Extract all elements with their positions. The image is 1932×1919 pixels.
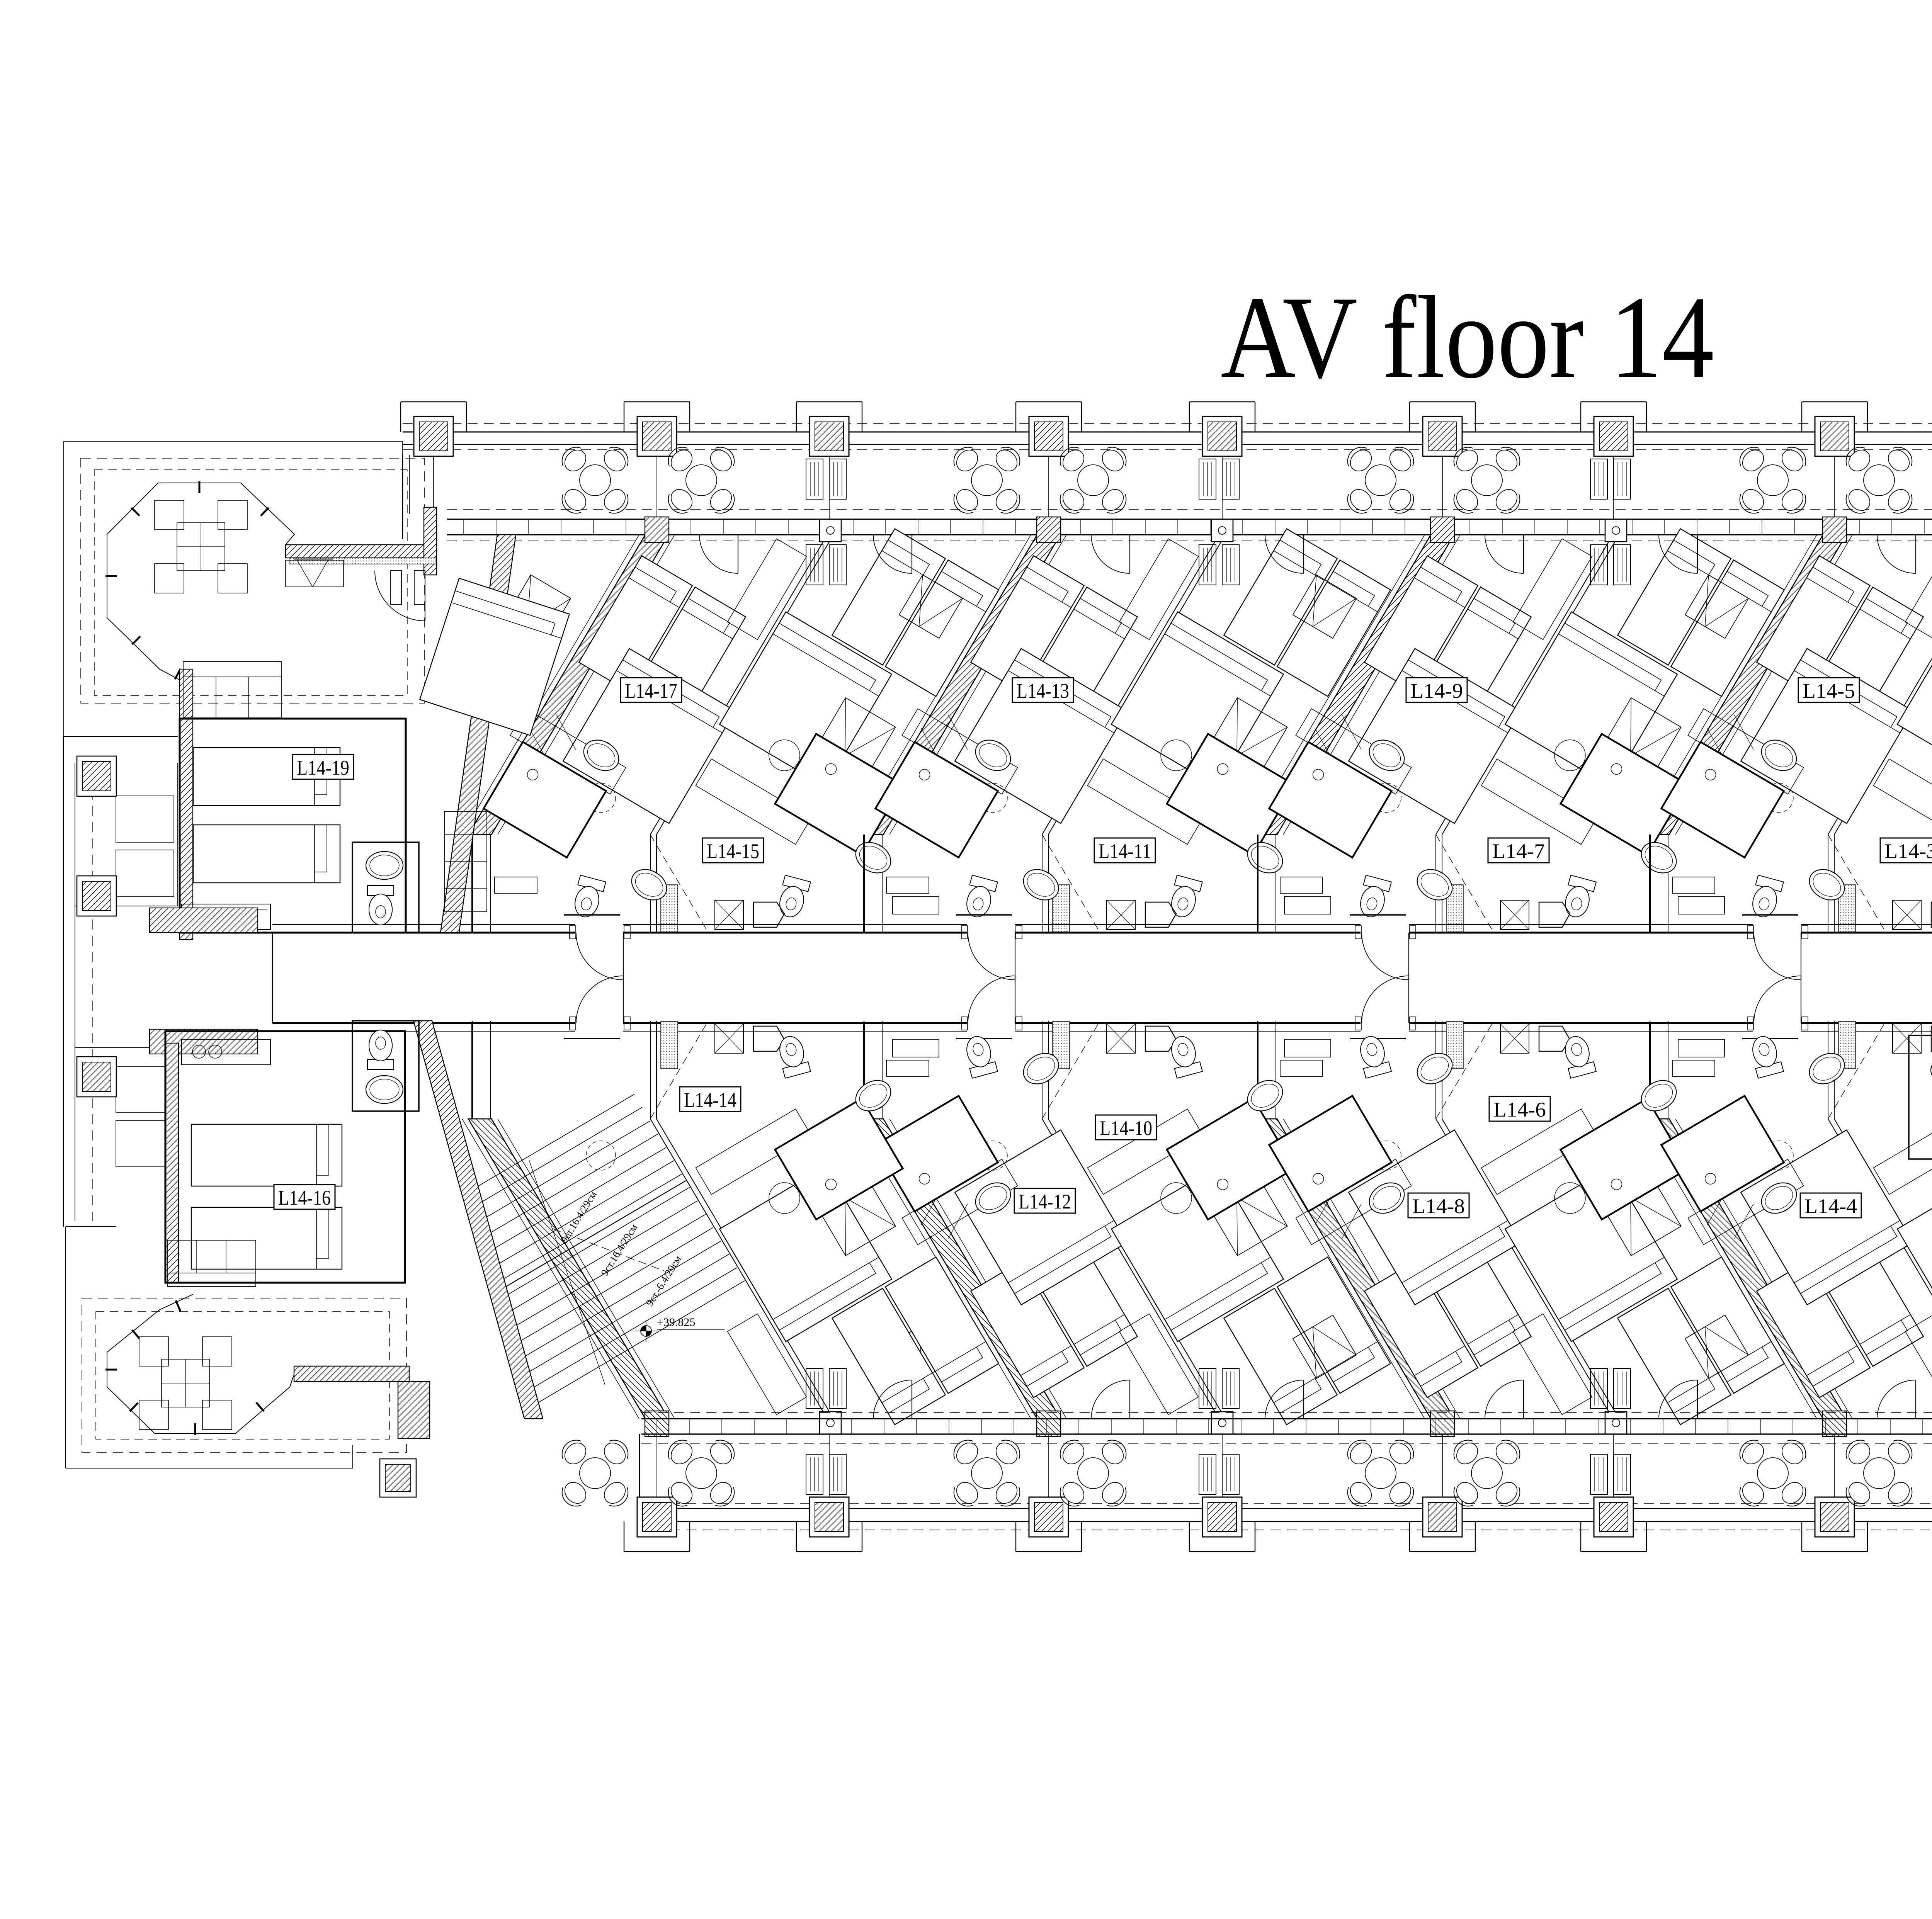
svg-text:L14-9: L14-9	[1410, 679, 1463, 702]
svg-text:L14-11: L14-11	[1099, 840, 1151, 863]
svg-text:AV floor 14: AV floor 14	[1221, 272, 1714, 403]
svg-text:L14-4: L14-4	[1804, 1195, 1857, 1218]
svg-text:L14-5: L14-5	[1803, 679, 1855, 702]
svg-text:+39.825: +39.825	[657, 1316, 695, 1329]
svg-text:L14-10: L14-10	[1100, 1117, 1152, 1140]
svg-text:L14-14: L14-14	[684, 1088, 736, 1112]
svg-text:L14-17: L14-17	[625, 679, 677, 702]
svg-text:L14-8: L14-8	[1412, 1195, 1465, 1218]
svg-text:L14-3: L14-3	[1884, 840, 1932, 863]
svg-text:L14-12: L14-12	[1019, 1190, 1071, 1213]
svg-text:L14-16: L14-16	[278, 1186, 331, 1209]
svg-text:L14-13: L14-13	[1017, 679, 1069, 702]
svg-text:L14-15: L14-15	[707, 840, 759, 863]
svg-text:L14-19: L14-19	[297, 756, 349, 779]
svg-text:L14-7: L14-7	[1492, 840, 1545, 863]
svg-text:L14-6: L14-6	[1493, 1098, 1546, 1121]
